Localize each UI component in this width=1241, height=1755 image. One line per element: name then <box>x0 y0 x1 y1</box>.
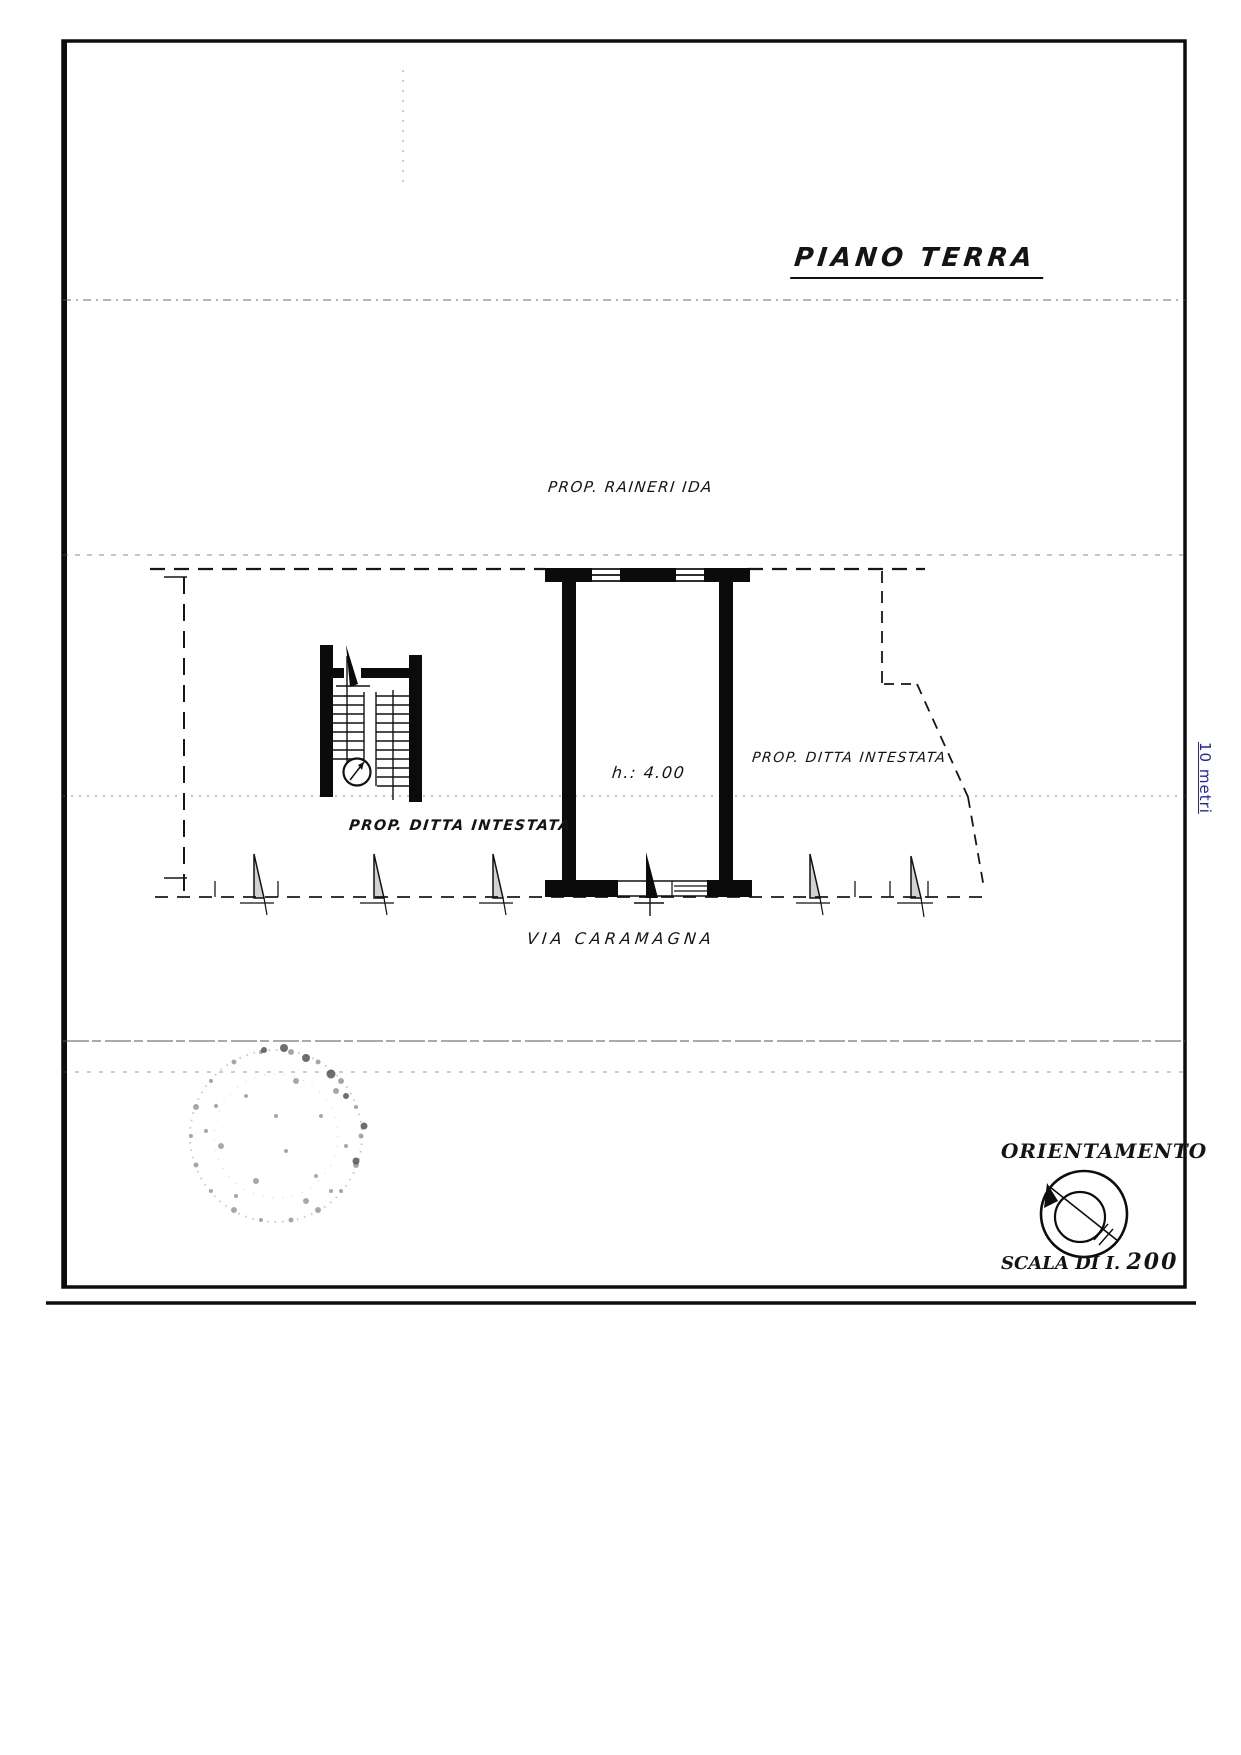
margin-measure-note: 10 metri <box>1196 742 1214 814</box>
plan-title: PIANO TERRA <box>790 243 1047 279</box>
window-symbol <box>676 566 704 584</box>
scale-prefix: SCALA DI I. <box>1001 1253 1120 1274</box>
door-survey-marker <box>634 852 664 916</box>
scanned-floor-plan-page: PIANO TERRA PROP. RAINERI IDA h.: 4.00 P… <box>0 0 1241 1755</box>
survey-marker <box>479 854 513 915</box>
compass-icon <box>1041 1171 1127 1257</box>
staircase <box>320 645 422 802</box>
survey-marker <box>240 854 274 915</box>
room-height-label: h.: 4.00 <box>611 763 686 782</box>
owner-label-north: PROP. RAINERI IDA <box>547 478 714 496</box>
street-name-label: VIA CARAMAGNA <box>526 929 716 948</box>
floor-plan-drawing <box>0 0 1241 1755</box>
owner-label-east: PROP. DITTA INTESTATA <box>751 750 947 766</box>
sheet-frame <box>46 41 1196 1303</box>
main-room <box>545 566 752 916</box>
owner-label-west: PROP. DITTA INTESTATA <box>348 818 572 834</box>
survey-marker <box>360 854 394 915</box>
doorway-symbol <box>618 881 707 896</box>
survey-marker <box>796 854 830 915</box>
orientation-title: ORIENTAMENTO <box>1001 1139 1207 1163</box>
scale-caption: SCALA DI I. 200 <box>1001 1249 1178 1275</box>
stair-direction-arrow <box>346 645 358 687</box>
scale-value: 200 <box>1126 1249 1178 1275</box>
window-symbol <box>592 566 620 584</box>
stamp-icon <box>189 1044 368 1223</box>
